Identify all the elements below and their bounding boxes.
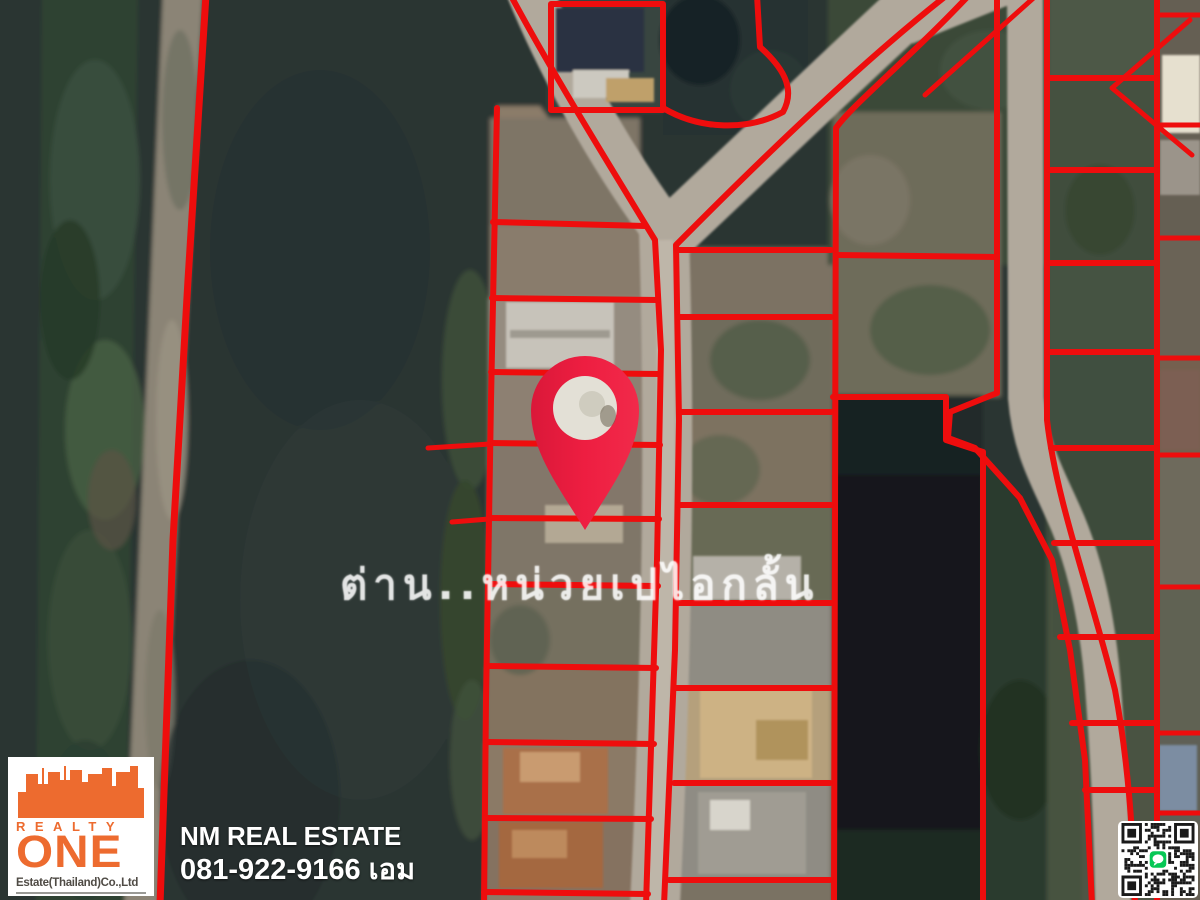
agency-contact-block: NM REAL ESTATE 081-922-9166 เอม	[180, 820, 415, 888]
realty-one-logo: REALTY ONE Estate(Thailand)Co.,Ltd	[8, 757, 154, 896]
listing-flyer: ต่าน..หน่วยเปไอกลั้น REALTY ONE Estate(T…	[0, 0, 1200, 900]
agency-name: NM REAL ESTATE	[180, 820, 415, 852]
phone-number: 081-922-9166 เอม	[180, 852, 415, 888]
line-qr-code	[1118, 821, 1198, 898]
city-skyline-icon	[16, 762, 146, 818]
map-watermark-label: ต่าน..หน่วยเปไอกลั้น	[340, 552, 860, 618]
logo-one-text: ONE	[16, 832, 154, 872]
map-pin-icon	[518, 344, 652, 536]
line-badge-icon	[1150, 851, 1167, 868]
logo-company-text: Estate(Thailand)Co.,Ltd	[16, 876, 146, 894]
